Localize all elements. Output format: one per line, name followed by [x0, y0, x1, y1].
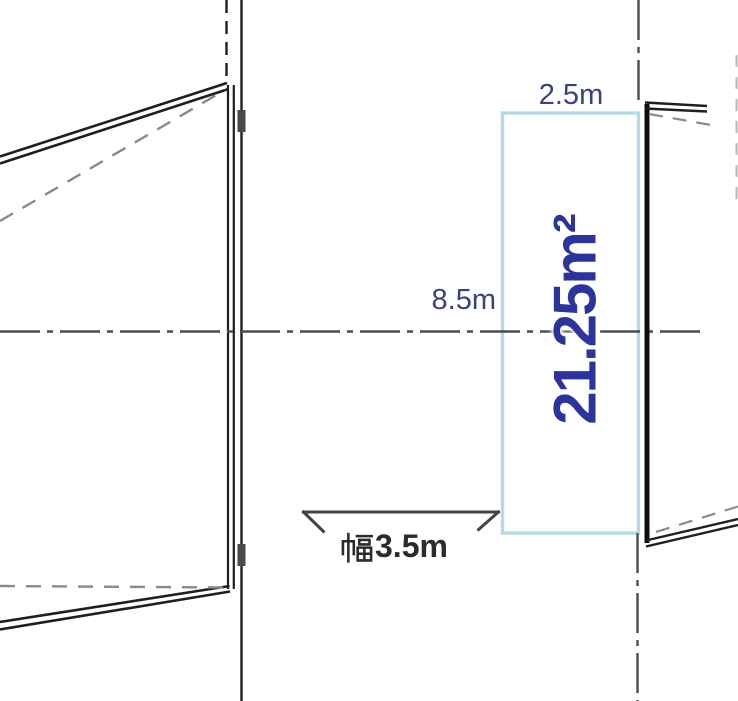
right-gate-top-leaf: [645, 103, 707, 112]
entrance-width-label: 3.5m: [341, 528, 448, 565]
site-plan-drawing: 2.5m 8.5m 21.25m² 3.5m: [0, 0, 738, 701]
drawing-linework: [0, 0, 738, 701]
plot-area-label: 21.25m²: [541, 215, 610, 424]
right-gate-swing-lines: [649, 55, 738, 532]
depth-dimension-label: 8.5m: [424, 286, 496, 315]
left-wall-double-line: [228, 85, 234, 589]
left-gate-top-hinge: [238, 110, 246, 132]
left-gate-bottom-swing-dashed: [0, 586, 226, 588]
left-gate-top-leaf: [0, 83, 229, 164]
kanji-haba-width-icon: [341, 531, 373, 563]
left-gate-bottom-leaf: [0, 586, 230, 630]
right-gate-bottom-leaf: [646, 519, 738, 547]
width-dimension-left-tick: [303, 511, 325, 533]
top-width-dimension-label: 2.5m: [536, 81, 606, 110]
left-gate-top-swing-dashed: [0, 90, 225, 221]
left-gate-structure: [0, 0, 242, 701]
left-gate-bottom-hinge: [238, 544, 246, 566]
right-gate-top-swing-dashed: [649, 114, 711, 125]
width-dimension-right-tick: [478, 511, 500, 531]
left-gate-swing-lines: [0, 90, 226, 588]
right-gate-structure: [645, 103, 738, 547]
entrance-width-value: 3.5m: [375, 528, 448, 565]
